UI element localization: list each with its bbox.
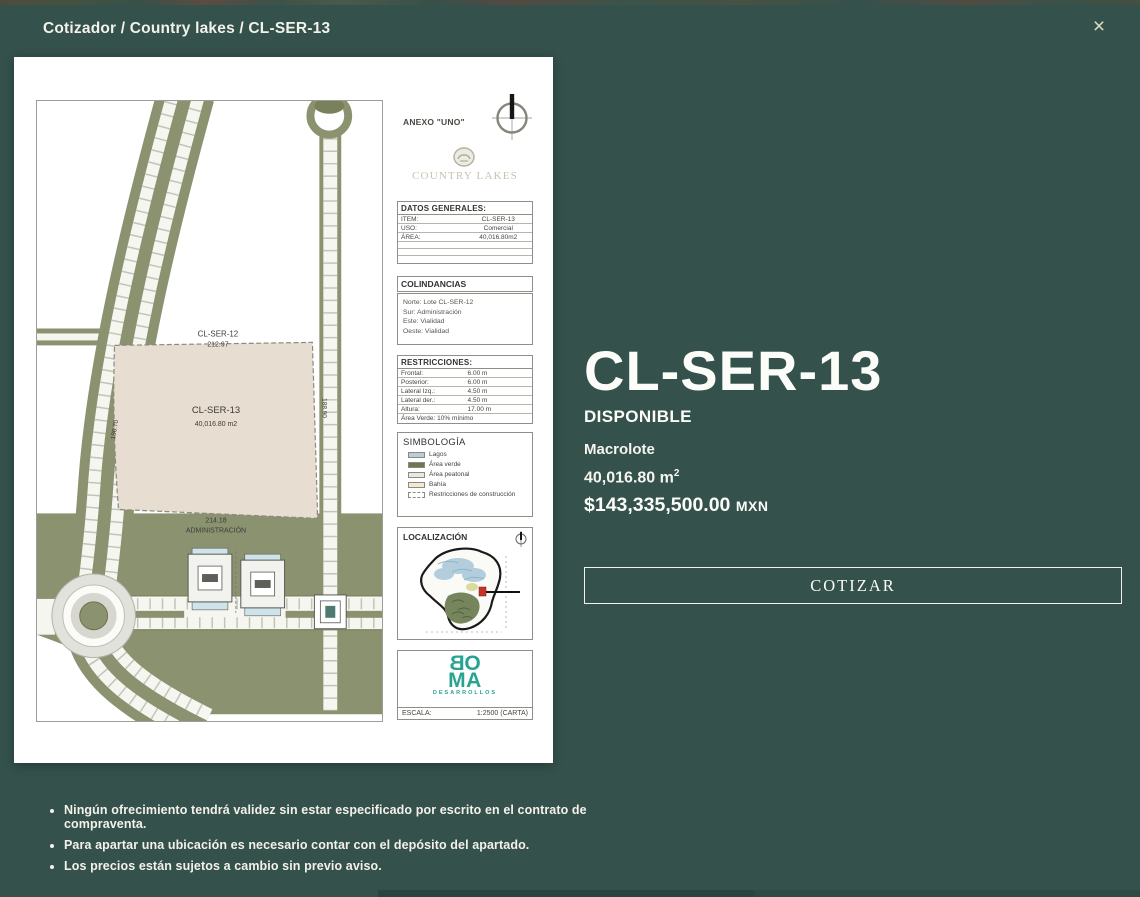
table-row-empty xyxy=(398,249,532,256)
legend-swatch-area-verde xyxy=(408,462,425,468)
table-row: ÁREA: 40,016.80m2 xyxy=(398,233,532,242)
datos-generales-box: DATOS GENERALES: ITEM: CL-SER-13 USO: Co… xyxy=(397,201,533,264)
table-row: USO: Comercial xyxy=(398,224,532,233)
north-compass-icon xyxy=(489,90,535,142)
row-value: CL-SER-13 xyxy=(468,216,529,223)
table-row-empty xyxy=(398,242,532,249)
row-label: ÁREA: xyxy=(401,234,468,241)
price-value: $143,335,500.00 xyxy=(584,494,730,516)
plan-document: CL-SER-12 212.97 CL-SER-13 40,016.80 m2 … xyxy=(14,57,553,763)
boma-subtitle: DESARROLLOS xyxy=(398,690,532,696)
label-south: ADMINISTRACIÓN xyxy=(186,525,246,534)
legend-item: Restricciones de construcción xyxy=(398,491,532,501)
table-row: ITEM: CL-SER-13 xyxy=(398,215,532,224)
row-value: 4.50 m xyxy=(468,397,529,404)
legend-swatch-lagos xyxy=(408,452,425,458)
row-label: Altura: xyxy=(401,406,468,413)
cotizar-button[interactable]: COTIZAR xyxy=(584,567,1122,604)
price-currency: MXN xyxy=(736,498,769,514)
annex-label: ANEXO "UNO" xyxy=(403,117,465,127)
colindancias-title: COLINDANCIAS xyxy=(397,276,533,292)
legend-label: Bahía xyxy=(429,481,446,488)
localizacion-box: LOCALIZACIÓN xyxy=(397,527,533,640)
row-value: 17.00 m xyxy=(468,406,529,413)
close-icon[interactable]: × xyxy=(1086,14,1112,40)
disclaimer-item: Ningún ofrecimiento tendrá validez sin e… xyxy=(64,803,624,831)
legend-item: Lagos xyxy=(398,451,532,461)
disclaimer-list: Ningún ofrecimiento tendrá validez sin e… xyxy=(64,803,624,880)
colindancia-line: Oeste: Vialidad xyxy=(403,327,527,337)
lot-title: CL-SER-13 xyxy=(584,338,882,403)
localizacion-minimap xyxy=(406,544,524,636)
road-junction xyxy=(314,595,346,629)
row-label: Lateral der.: xyxy=(401,397,468,404)
breadcrumb[interactable]: Cotizador / Country lakes / CL-SER-13 xyxy=(43,20,330,38)
label-north-lot: CL-SER-12 xyxy=(198,329,239,338)
country-lakes-emblem-icon xyxy=(451,146,477,168)
row-label: USO: xyxy=(401,225,468,232)
colindancia-line: Este: Vialidad xyxy=(403,317,527,327)
disclaimer-item: Los precios están sujetos a cambio sin p… xyxy=(64,859,624,873)
escala-value: 1:2500 (CARTA) xyxy=(477,710,528,717)
legend-label: Área peatonal xyxy=(429,471,469,478)
label-south-length: 214.18 xyxy=(205,517,226,524)
boma-logo: BO MA xyxy=(398,651,532,689)
row-label: Lateral Izq.: xyxy=(401,388,468,395)
legend-item: Área verde xyxy=(398,461,532,471)
table-row: Posterior: 6.00 m xyxy=(398,378,532,387)
legend-swatch-bahia xyxy=(408,482,425,488)
lot-area: 40,016.80 m2 xyxy=(584,468,679,487)
table-row: Altura: 17.00 m xyxy=(398,405,532,414)
site-plan-panel: CL-SER-12 212.97 CL-SER-13 40,016.80 m2 … xyxy=(36,100,383,722)
row-value: 6.00 m xyxy=(468,379,529,386)
lot-area-value: 40,016.80 m xyxy=(584,469,674,486)
background-map-sliver xyxy=(0,0,1140,5)
lot-type: Macrolote xyxy=(584,441,655,458)
colindancia-line: Sur: Administración xyxy=(403,308,527,318)
legend-item: Área peatonal xyxy=(398,471,532,481)
colindancia-line: Norte: Lote CL-SER-12 xyxy=(403,298,527,308)
plot-cl-ser-13 xyxy=(114,342,318,518)
boma-letter: B xyxy=(449,655,465,672)
label-north-length: 212.97 xyxy=(207,341,228,348)
label-plot-area: 40,016.80 m2 xyxy=(195,421,238,428)
disclaimer-item: Para apartar una ubicación es necesario … xyxy=(64,838,624,852)
row-value: 40,016.80m2 xyxy=(468,234,529,241)
simbologia-box: SIMBOLOGÍA Lagos Área verde Área peatona… xyxy=(397,432,533,517)
restricciones-title: RESTRICCIONES: xyxy=(398,356,532,369)
restricciones-box: RESTRICCIONES: Frontal: 6.00 m Posterior… xyxy=(397,355,533,424)
cul-de-sac xyxy=(310,101,348,135)
escala-label: ESCALA: xyxy=(402,710,432,717)
row-label: Posterior: xyxy=(401,379,468,386)
status-badge: DISPONIBLE xyxy=(584,407,692,427)
legend-swatch-restricciones xyxy=(408,492,425,498)
localizacion-title: LOCALIZACIÓN xyxy=(403,532,467,542)
table-row-empty xyxy=(398,256,532,263)
row-value: Comercial xyxy=(468,225,529,232)
legend-item: Bahía xyxy=(398,481,532,491)
site-plan-drawing: CL-SER-12 212.97 CL-SER-13 40,016.80 m2 … xyxy=(37,101,382,721)
row-value: 4.50 m xyxy=(468,388,529,395)
legend-label: Lagos xyxy=(429,451,447,458)
label-plot-name: CL-SER-13 xyxy=(192,405,240,416)
table-row: Frontal: 6.00 m xyxy=(398,369,532,378)
table-row: Lateral Izq.: 4.50 m xyxy=(398,387,532,396)
lot-price: $143,335,500.00 MXN xyxy=(584,494,768,517)
label-east-length: 188.90 xyxy=(320,398,327,418)
row-label: Frontal: xyxy=(401,370,468,377)
background-card-edge xyxy=(378,890,754,897)
boma-letter: A xyxy=(466,669,482,692)
table-row: Lateral der.: 4.50 m xyxy=(398,396,532,405)
boma-box: BO MA DESARROLLOS ESCALA: 1:2500 (CARTA) xyxy=(397,650,533,720)
row-value: 6.00 m xyxy=(468,370,529,377)
colindancias-box: Norte: Lote CL-SER-12 Sur: Administració… xyxy=(397,293,533,345)
escala-row: ESCALA: 1:2500 (CARTA) xyxy=(398,707,532,719)
datos-generales-title: DATOS GENERALES: xyxy=(398,202,532,215)
plan-side-column: ANEXO "UNO" COUNTRY LAKES DATOS GENERALE… xyxy=(397,100,533,722)
background-card-edge-2 xyxy=(754,890,1140,897)
legend-swatch-area-peatonal xyxy=(408,472,425,478)
simbologia-title: SIMBOLOGÍA xyxy=(398,433,532,451)
restricciones-footer: Área Verde: 10% mínimo xyxy=(398,414,532,423)
row-label: ITEM: xyxy=(401,216,468,223)
legend-label: Área verde xyxy=(429,461,461,468)
lot-area-sup: 2 xyxy=(674,468,680,479)
country-lakes-wordmark: COUNTRY LAKES xyxy=(397,170,533,182)
legend-label: Restricciones de construcción xyxy=(429,491,515,498)
